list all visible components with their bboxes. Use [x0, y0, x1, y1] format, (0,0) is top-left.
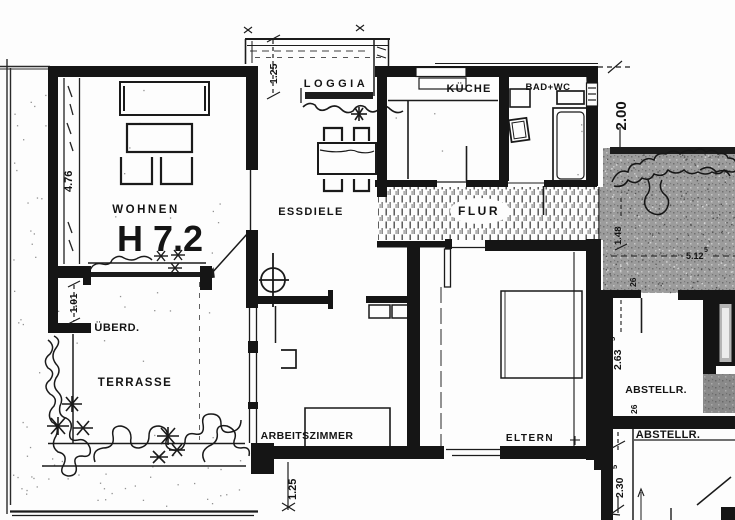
svg-text:1.48: 1.48: [613, 227, 624, 246]
svg-text:5: 5: [608, 337, 617, 341]
svg-text:1.01: 1.01: [69, 293, 80, 313]
svg-text:ÜBERD.: ÜBERD.: [94, 321, 139, 334]
svg-text:ABSTELLR.: ABSTELLR.: [625, 384, 687, 396]
svg-text:2.00: 2.00: [613, 101, 630, 130]
svg-text:TERRASSE: TERRASSE: [98, 377, 173, 389]
svg-text:5: 5: [704, 247, 708, 254]
svg-text:WOHNEN: WOHNEN: [112, 204, 179, 216]
svg-text:4.76: 4.76: [63, 171, 75, 192]
svg-text:H 7.2: H 7.2: [117, 218, 203, 259]
svg-text:1.25: 1.25: [268, 63, 280, 84]
svg-text:ELTERN: ELTERN: [506, 433, 554, 444]
svg-text:ESSDIELE: ESSDIELE: [278, 206, 344, 218]
svg-text:LOGGIA: LOGGIA: [304, 78, 368, 90]
svg-text:ABSTELLR.: ABSTELLR.: [636, 429, 700, 441]
svg-text:5: 5: [610, 465, 619, 469]
svg-text:26: 26: [629, 404, 639, 414]
svg-text:FLUR: FLUR: [458, 204, 500, 218]
svg-text:1.25: 1.25: [287, 479, 299, 500]
svg-text:BAD+WC: BAD+WC: [526, 82, 571, 93]
svg-text:5.12: 5.12: [686, 251, 704, 261]
svg-text:26: 26: [628, 277, 638, 287]
svg-text:2.63: 2.63: [612, 349, 624, 370]
svg-text:KÜCHE: KÜCHE: [446, 82, 491, 95]
svg-text:2.30: 2.30: [614, 477, 626, 498]
svg-text:ARBEITSZIMMER: ARBEITSZIMMER: [261, 430, 354, 442]
